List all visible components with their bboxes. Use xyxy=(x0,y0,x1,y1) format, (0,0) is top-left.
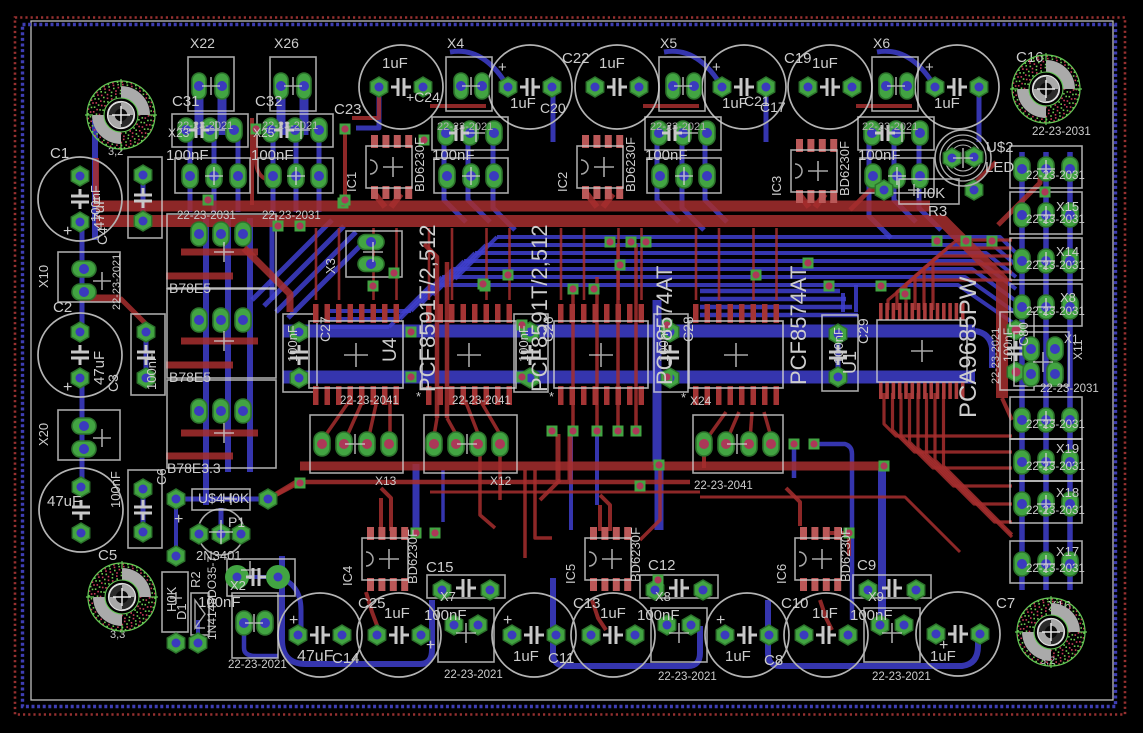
svg-text:C13: C13 xyxy=(573,595,601,612)
svg-text:+: + xyxy=(174,511,183,528)
svg-text:U1: U1 xyxy=(840,351,860,374)
svg-text:22-23-2031: 22-23-2031 xyxy=(1026,306,1085,318)
svg-text:+: + xyxy=(426,637,435,654)
svg-text:LED: LED xyxy=(985,159,1014,176)
svg-text:100nF: 100nF xyxy=(850,607,893,624)
svg-text:H0K: H0K xyxy=(916,185,945,202)
svg-text:X26: X26 xyxy=(274,35,299,51)
svg-text:*: * xyxy=(416,389,421,404)
svg-text:B78E3.3: B78E3.3 xyxy=(167,460,221,476)
svg-text:C22: C22 xyxy=(562,50,590,67)
svg-text:C2: C2 xyxy=(53,299,72,316)
svg-text:C4: C4 xyxy=(94,227,110,245)
svg-text:X10: X10 xyxy=(36,265,51,288)
svg-text:BD6230F: BD6230F xyxy=(837,141,852,196)
svg-text:22-23-2021: 22-23-2021 xyxy=(437,121,493,133)
svg-text:100nF: 100nF xyxy=(656,325,671,362)
svg-text:IC1: IC1 xyxy=(344,172,359,192)
svg-text:100nF: 100nF xyxy=(645,147,688,164)
svg-text:*: * xyxy=(549,389,554,404)
svg-text:100nF: 100nF xyxy=(88,185,103,222)
svg-text:C31: C31 xyxy=(172,93,200,110)
svg-text:C9: C9 xyxy=(857,557,876,574)
svg-text:C17: C17 xyxy=(760,99,786,115)
svg-text:U$2: U$2 xyxy=(986,139,1014,156)
svg-text:22-23-2031: 22-23-2031 xyxy=(177,210,236,222)
svg-text:X7: X7 xyxy=(440,589,456,604)
svg-text:+: + xyxy=(939,637,948,654)
svg-text:X2: X2 xyxy=(230,578,246,593)
svg-text:H0K: H0K xyxy=(222,490,250,506)
svg-text:IC5: IC5 xyxy=(563,564,578,584)
svg-text:+: + xyxy=(503,612,512,629)
svg-text:C12: C12 xyxy=(648,557,676,574)
svg-text:IC6: IC6 xyxy=(774,564,789,584)
svg-text:BD6230F: BD6230F xyxy=(838,527,853,582)
svg-text:X17: X17 xyxy=(1056,544,1079,559)
svg-text:X12: X12 xyxy=(490,474,512,488)
svg-text:+: + xyxy=(712,59,721,76)
svg-text:100nF: 100nF xyxy=(424,607,467,624)
svg-text:C32: C32 xyxy=(255,93,283,110)
svg-text:100nF: 100nF xyxy=(1001,328,1015,362)
svg-text:C8: C8 xyxy=(764,652,783,669)
svg-text:X8: X8 xyxy=(1060,290,1076,305)
svg-text:1uF: 1uF xyxy=(812,605,838,622)
svg-text:100nF: 100nF xyxy=(251,147,294,164)
svg-text:+: + xyxy=(289,612,298,629)
svg-text:C20: C20 xyxy=(540,100,566,116)
svg-text:IC2: IC2 xyxy=(555,172,570,192)
svg-text:22-23-2031: 22-23-2031 xyxy=(1026,260,1085,272)
svg-text:PCF8591T/2,512: PCF8591T/2,512 xyxy=(527,224,552,392)
svg-text:1uF: 1uF xyxy=(725,648,751,665)
svg-text:C10: C10 xyxy=(781,595,809,612)
svg-text:PCA9685PW: PCA9685PW xyxy=(955,276,982,418)
svg-text:C5: C5 xyxy=(98,547,117,564)
svg-text:100nF: 100nF xyxy=(166,147,209,164)
svg-text:1uF: 1uF xyxy=(599,55,625,72)
svg-text:C26: C26 xyxy=(540,316,556,342)
svg-text:C23: C23 xyxy=(334,101,362,118)
svg-text:BD6230F: BD6230F xyxy=(628,527,643,582)
svg-text:X24: X24 xyxy=(690,394,712,408)
svg-text:22-23-2031: 22-23-2031 xyxy=(1026,170,1085,182)
svg-text:22-23-2041: 22-23-2041 xyxy=(694,480,753,492)
svg-text:C3: C3 xyxy=(105,374,121,392)
svg-text:P1: P1 xyxy=(228,514,245,530)
svg-text:22-23-2021: 22-23-2021 xyxy=(228,659,287,671)
svg-text:1uF: 1uF xyxy=(384,605,410,622)
svg-text:C1: C1 xyxy=(50,145,69,162)
svg-text:22-23-2041: 22-23-2041 xyxy=(340,395,399,407)
svg-text:22-23-2021: 22-23-2021 xyxy=(177,120,233,132)
svg-text:22-23-2021: 22-23-2021 xyxy=(990,328,1002,384)
svg-text:X20: X20 xyxy=(36,423,51,446)
svg-text:100nF: 100nF xyxy=(285,325,300,362)
svg-text:X3: X3 xyxy=(323,258,338,274)
svg-text:X5: X5 xyxy=(660,35,677,51)
svg-text:1uF: 1uF xyxy=(513,648,539,665)
svg-text:100nF: 100nF xyxy=(516,325,531,362)
svg-text:X15: X15 xyxy=(1056,199,1079,214)
svg-text:100nF: 100nF xyxy=(858,147,901,164)
svg-text:C29: C29 xyxy=(855,318,871,344)
svg-text:1uF: 1uF xyxy=(600,605,626,622)
svg-text:22-23-2031: 22-23-2031 xyxy=(1026,419,1085,431)
svg-text:C7: C7 xyxy=(996,595,1015,612)
svg-text:C80: C80 xyxy=(1016,322,1031,346)
svg-text:22-23-2041: 22-23-2041 xyxy=(452,395,511,407)
svg-text:X8: X8 xyxy=(655,589,671,604)
svg-text:R2: R2 xyxy=(188,571,203,588)
svg-text:22-23-2021: 22-23-2021 xyxy=(444,669,503,681)
svg-text:X14: X14 xyxy=(1056,244,1079,259)
svg-text:PCF8591T/2,512: PCF8591T/2,512 xyxy=(415,224,440,392)
svg-text:22-23-2021: 22-23-2021 xyxy=(262,120,318,132)
svg-text:X18: X18 xyxy=(1056,485,1079,500)
svg-text:+: + xyxy=(925,59,934,76)
svg-text:22-23-2021: 22-23-2021 xyxy=(862,121,918,133)
svg-text:100nF: 100nF xyxy=(198,594,241,611)
svg-text:C15: C15 xyxy=(426,559,454,576)
svg-text:+: + xyxy=(498,59,507,76)
svg-text:R3: R3 xyxy=(928,203,947,220)
svg-text:U4: U4 xyxy=(380,337,401,362)
svg-text:+: + xyxy=(63,223,72,240)
svg-text:X22: X22 xyxy=(190,35,215,51)
svg-text:BD6230F: BD6230F xyxy=(405,529,420,584)
svg-text:22-23-2021: 22-23-2021 xyxy=(658,671,717,683)
svg-text:1uF: 1uF xyxy=(934,95,960,112)
svg-text:22-23-2031: 22-23-2031 xyxy=(1040,383,1099,395)
svg-text:100nF: 100nF xyxy=(144,353,159,390)
svg-text:C25: C25 xyxy=(358,595,386,612)
svg-text:C19: C19 xyxy=(784,50,812,67)
svg-text:*: * xyxy=(681,390,686,405)
svg-text:+: + xyxy=(716,612,725,629)
svg-text:22-23-2021: 22-23-2021 xyxy=(111,254,123,310)
svg-text:PCF8574AT: PCF8574AT xyxy=(786,266,811,385)
svg-text:1uF: 1uF xyxy=(510,95,536,112)
svg-text:47uF: 47uF xyxy=(297,648,334,665)
svg-text:22-23-2031: 22-23-2031 xyxy=(262,210,321,222)
svg-text:22-23-2031: 22-23-2031 xyxy=(1032,126,1091,138)
svg-text:IC4: IC4 xyxy=(340,566,355,586)
svg-text:22-23-2031: 22-23-2031 xyxy=(1026,563,1085,575)
svg-text:H0K: H0K xyxy=(164,586,179,612)
svg-text:100nF: 100nF xyxy=(637,607,680,624)
svg-text:100nF: 100nF xyxy=(432,147,475,164)
svg-text:1uF: 1uF xyxy=(382,55,408,72)
svg-text:X6: X6 xyxy=(873,35,890,51)
svg-text:X4: X4 xyxy=(447,35,464,51)
svg-text:B78E5: B78E5 xyxy=(169,280,211,296)
svg-text:X11: X11 xyxy=(1071,339,1085,360)
svg-text:+: + xyxy=(63,379,72,396)
svg-text:1uF: 1uF xyxy=(812,55,838,72)
svg-text:22-23-2021: 22-23-2021 xyxy=(650,121,706,133)
svg-text:X13: X13 xyxy=(375,474,397,488)
svg-text:47uF: 47uF xyxy=(47,493,81,510)
svg-text:X9: X9 xyxy=(868,589,884,604)
svg-text:C14: C14 xyxy=(332,650,360,667)
svg-text:C11: C11 xyxy=(548,650,574,667)
svg-text:22-23-2031: 22-23-2031 xyxy=(1026,214,1085,226)
svg-text:22-23-2021: 22-23-2021 xyxy=(872,671,931,683)
svg-text:BD6230F: BD6230F xyxy=(412,137,427,192)
svg-text:22-23-2031: 22-23-2031 xyxy=(1026,461,1085,473)
svg-text:U$4: U$4 xyxy=(198,490,224,506)
svg-text:X19: X19 xyxy=(1056,441,1079,456)
svg-text:B78E5: B78E5 xyxy=(169,369,211,385)
svg-text:100nF: 100nF xyxy=(108,471,123,508)
svg-text:C28: C28 xyxy=(680,316,696,342)
svg-text:C27: C27 xyxy=(317,316,333,342)
svg-text:+C24: +C24 xyxy=(406,89,440,105)
svg-text:BD6230F: BD6230F xyxy=(623,137,638,192)
svg-text:22-23-2031: 22-23-2031 xyxy=(1026,505,1085,517)
svg-text:IC3: IC3 xyxy=(769,176,784,196)
